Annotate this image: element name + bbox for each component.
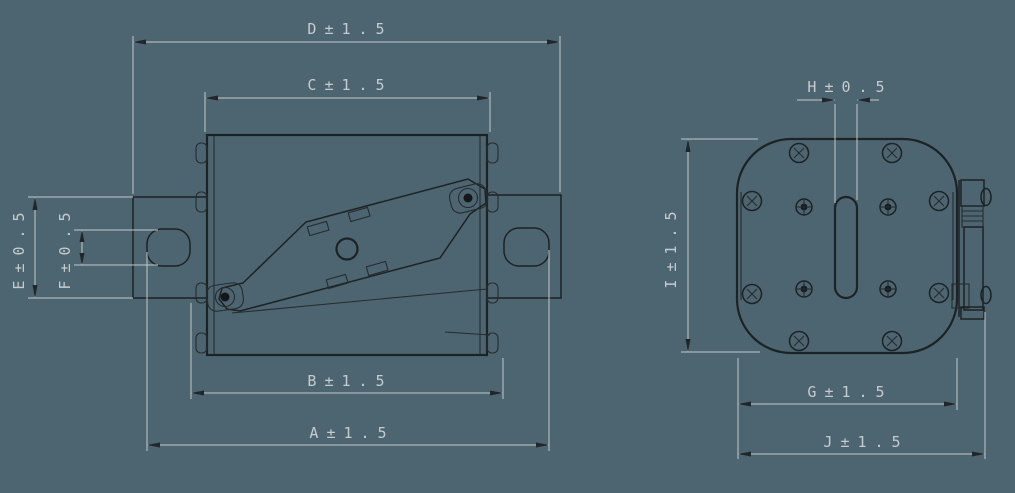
socket-screw-icons [796,199,896,297]
terminal-bolt-icon [981,189,991,206]
dim-label-f: F±0.5 [56,204,74,289]
dimension-f: F±0.5 [56,204,158,289]
phillips-screw-icon [930,284,949,303]
left-blade-terminal [133,197,207,298]
left-terminal-hole [147,229,190,266]
center-slot [835,197,857,298]
dim-label-b: B±1.5 [307,372,392,390]
indicator-lever [205,179,490,335]
socket-screw-icon [880,281,896,297]
right-blade-terminal [487,195,561,298]
dim-label-e: E±0.5 [10,204,28,289]
phillips-screw-icon [930,192,949,211]
side-view [133,135,561,355]
dim-label-c: C±1.5 [307,76,392,94]
dim-label-h: H±0.5 [807,78,892,96]
phillips-screw-icon [743,192,762,211]
fuse-body [196,135,498,355]
lever-center-hole [337,239,358,260]
dimension-b: B±1.5 [191,303,503,399]
dim-label-d: D±1.5 [307,20,392,38]
dimension-i: I±1.5 [662,139,760,352]
socket-screw-icon [796,199,812,215]
dim-label-j: J±1.5 [823,433,908,451]
phillips-screw-icon [790,144,809,163]
phillips-screw-icons [743,144,949,351]
dimension-c: C±1.5 [205,76,490,132]
socket-screw-icon [880,199,896,215]
dimension-d: D±1.5 [133,20,560,194]
dimensions: D±1.5 C±1.5 B±1.5 A±1.5 [10,20,985,459]
phillips-screw-icon [883,332,902,351]
end-view [737,139,991,353]
phillips-screw-icon [790,332,809,351]
dimension-h: H±0.5 [797,78,893,203]
end-plate [737,139,957,353]
right-terminal-hole [504,228,549,266]
dim-label-a: A±1.5 [309,424,394,442]
phillips-screw-icon [743,285,762,304]
dim-label-g: G±1.5 [807,383,892,401]
drawing-canvas: D±1.5 C±1.5 B±1.5 A±1.5 [0,0,1015,493]
phillips-screw-icon [883,144,902,163]
technical-drawing: D±1.5 C±1.5 B±1.5 A±1.5 [0,0,1015,493]
socket-screw-icon [796,281,812,297]
dim-label-i: I±1.5 [662,203,680,288]
